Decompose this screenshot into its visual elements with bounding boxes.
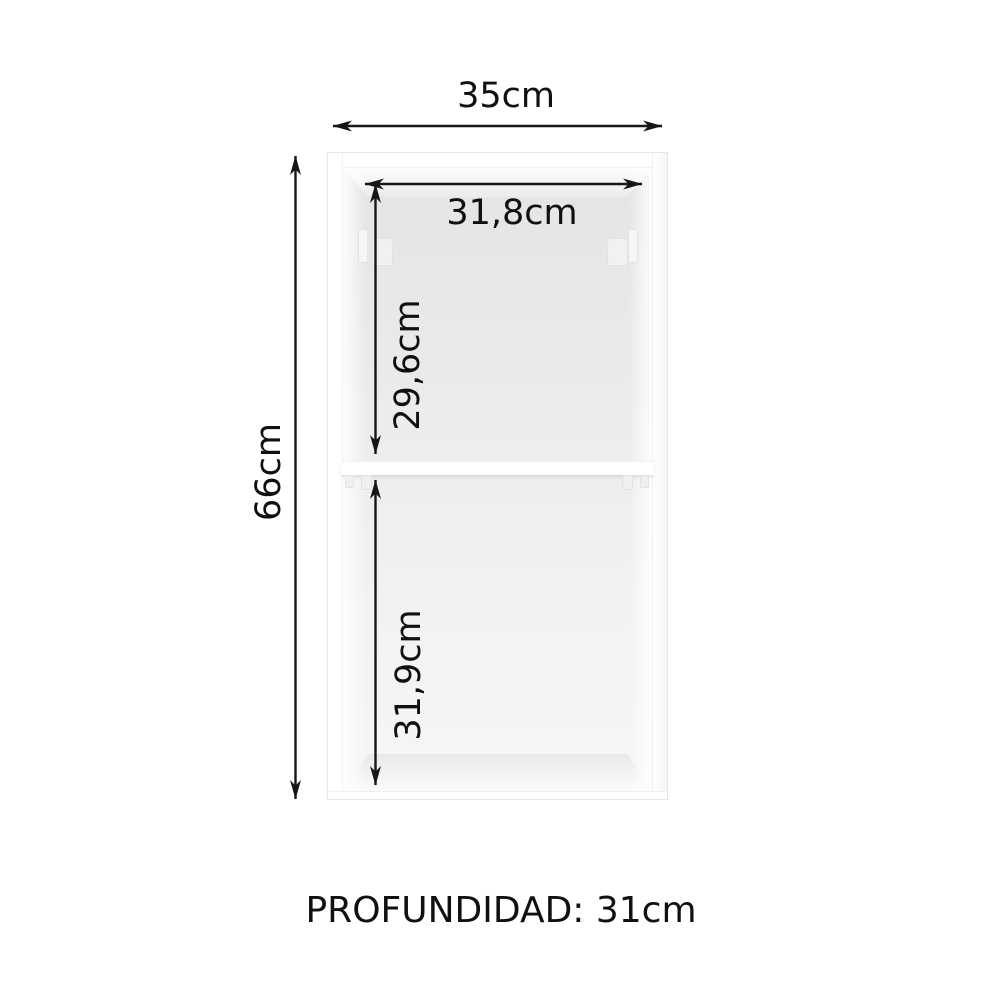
cabinet-top-panel xyxy=(328,153,667,168)
dimension-diagram-canvas: 35cm 31,8cm 29,6cm 31,9cm 66cm PROFUNDID… xyxy=(0,0,1000,1000)
hinge-pad-left-icon xyxy=(372,238,393,266)
cabinet-bottom-panel xyxy=(328,791,667,799)
shelf-support-icon xyxy=(345,475,354,488)
shelf-support-icon xyxy=(622,475,633,490)
shelf-support-icon xyxy=(640,475,649,488)
hinge-pad-right-icon xyxy=(607,238,628,266)
label-outer-width: 35cm xyxy=(457,77,555,116)
shelf-support-icon xyxy=(361,475,372,490)
cabinet-right-panel xyxy=(652,153,667,799)
label-upper-inner-height: 29,6cm xyxy=(389,299,428,430)
label-depth: PROFUNDIDAD: 31cm xyxy=(305,891,696,931)
middle-shelf xyxy=(341,461,654,475)
label-inner-width: 31,8cm xyxy=(446,194,577,233)
cabinet-frame xyxy=(327,152,668,800)
label-lower-inner-height: 31,9cm xyxy=(390,609,429,740)
label-total-height: 66cm xyxy=(250,423,289,521)
hinge-plate-left-icon xyxy=(358,229,368,263)
cabinet-left-panel xyxy=(328,153,343,799)
cabinet-floor xyxy=(342,754,653,792)
hinge-plate-right-icon xyxy=(628,229,638,263)
